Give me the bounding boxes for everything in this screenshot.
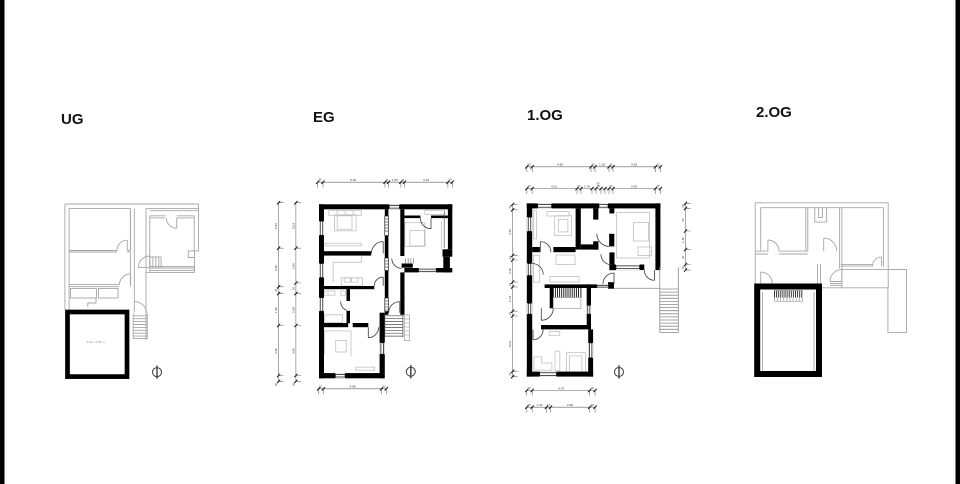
svg-text:4.50: 4.50 [557,163,563,167]
svg-text:2.OG: 2.OG [756,104,792,121]
svg-text:1.30: 1.30 [599,163,605,167]
svg-text:2.79: 2.79 [508,296,512,302]
svg-text:5.04: 5.04 [508,341,512,347]
svg-text:5.51: 5.51 [274,223,278,229]
svg-text:2.76: 2.76 [508,268,512,274]
svg-text:1.93: 1.93 [536,403,542,407]
svg-text:4.79: 4.79 [558,386,564,390]
svg-text:3.90: 3.90 [291,348,295,354]
svg-text:5.64 x 4.85 m: 5.64 x 4.85 m [86,340,105,344]
svg-text:2.90: 2.90 [274,348,278,354]
svg-text:2.90: 2.90 [567,403,573,407]
svg-text:3.93: 3.93 [631,163,637,167]
svg-text:24: 24 [508,312,512,315]
svg-text:EG: EG [313,109,335,126]
svg-text:2.38: 2.38 [291,307,295,313]
svg-text:1.05: 1.05 [392,178,398,182]
svg-text:3.43: 3.43 [423,178,429,182]
svg-text:2.90: 2.90 [274,265,278,271]
svg-text:1.OG: 1.OG [527,107,563,124]
svg-text:1.30: 1.30 [681,237,685,243]
svg-text:5.18: 5.18 [350,178,356,182]
svg-text:3.93: 3.93 [631,184,637,188]
svg-text:4.01: 4.01 [551,184,557,188]
svg-text:1.90: 1.90 [274,307,278,313]
svg-text:2.90: 2.90 [291,263,295,269]
svg-text:3.30: 3.30 [508,229,512,235]
svg-text:UG: UG [61,111,84,128]
svg-text:1.76: 1.76 [584,184,590,188]
svg-text:5.03: 5.03 [291,223,295,229]
svg-text:4.68: 4.68 [349,385,355,389]
